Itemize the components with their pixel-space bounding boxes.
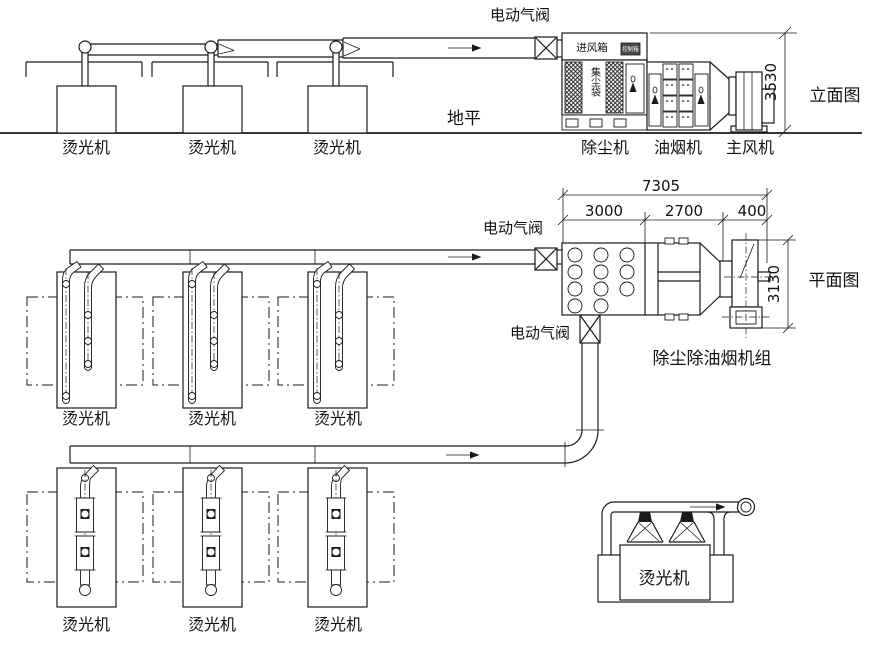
machine-label: 烫光机 <box>314 615 362 634</box>
main-fan-label: 主风机 <box>726 138 774 157</box>
machine-label: 烫光机 <box>314 409 362 428</box>
dim-seg3: 400 <box>738 202 767 220</box>
electric-valve-plan-bottom <box>580 315 600 343</box>
dim-seg2: 2700 <box>665 202 703 220</box>
ironing-machine-plan-4 <box>27 466 143 608</box>
ironing-machine-elev-3 <box>277 41 393 133</box>
elevation-view: 3530 电动气阀 地平 进风箱 控制箱 集尘袋 烫光机 烫光机 烫光机 除尘机… <box>0 6 862 157</box>
ironing-machine-plan-2 <box>153 262 269 409</box>
dim-height-plan: 3130 <box>765 265 783 303</box>
dust-bag-label: 集尘袋 <box>589 66 601 97</box>
inlet-box-label: 进风箱 <box>576 41 608 54</box>
exhaust-hood-2 <box>669 512 705 542</box>
unit-label: 除尘除油烟机组 <box>653 349 772 369</box>
riser-duct-plan <box>565 343 604 467</box>
machine-label: 烫光机 <box>62 138 110 157</box>
machine-label: 烫光机 <box>188 138 236 157</box>
ironing-machine-plan-6 <box>278 466 394 608</box>
filter-media-left <box>565 62 582 113</box>
filter-media-right <box>606 62 623 113</box>
plan-view-label: 平面图 <box>809 271 860 291</box>
pipe-elbow-left <box>602 502 614 555</box>
elevation-view-label: 立面图 <box>810 86 861 106</box>
machine-hood-detail: 烫光机 <box>598 499 755 603</box>
plan-view: 7305 3000 2700 400 <box>27 177 860 634</box>
machine-label: 烫光机 <box>313 138 361 157</box>
ironing-machine-plan-1 <box>27 262 143 409</box>
machine-label: 烫光机 <box>62 409 110 428</box>
electric-valve-plan-top <box>535 248 562 270</box>
plan-duct-upper <box>70 250 535 264</box>
dust-remover-label: 除尘机 <box>581 138 629 157</box>
oil-smoke-label: 油烟机 <box>654 138 702 157</box>
dim-seg1: 3000 <box>585 202 623 220</box>
dim-height-elev: 3530 <box>762 63 780 101</box>
ironing-machine-plan-5 <box>153 466 269 608</box>
machine-label: 烫光机 <box>188 409 236 428</box>
duct-system-drawing: 3530 电动气阀 地平 进风箱 控制箱 集尘袋 烫光机 烫光机 烫光机 除尘机… <box>0 0 870 649</box>
ground-label: 地平 <box>447 109 481 129</box>
machine-label: 烫光机 <box>62 615 110 634</box>
machine-label: 烫光机 <box>188 615 236 634</box>
machine-label: 烫光机 <box>639 569 690 589</box>
access-door <box>695 74 708 126</box>
valve-label-plan-bottom: 电动气阀 <box>510 324 570 342</box>
oil-smoke-unit-elev <box>647 62 710 130</box>
elevation-main-duct <box>85 38 562 58</box>
plan-duct-lower <box>70 446 566 463</box>
exhaust-hood-1 <box>627 512 663 542</box>
inlet-panel-label: 控制箱 <box>622 45 639 53</box>
ironing-machine-plan-3 <box>278 262 394 409</box>
drawing-page: 3530 电动气阀 地平 进风箱 控制箱 集尘袋 烫光机 烫光机 烫光机 除尘机… <box>0 0 870 649</box>
dim-3130: 3130 <box>758 235 796 333</box>
electric-valve-elev <box>535 37 557 59</box>
dim-total: 7305 <box>642 177 680 195</box>
access-door <box>626 64 644 113</box>
valve-label-elev: 电动气阀 <box>490 6 550 24</box>
valve-label-plan-top: 电动气阀 <box>483 219 543 237</box>
